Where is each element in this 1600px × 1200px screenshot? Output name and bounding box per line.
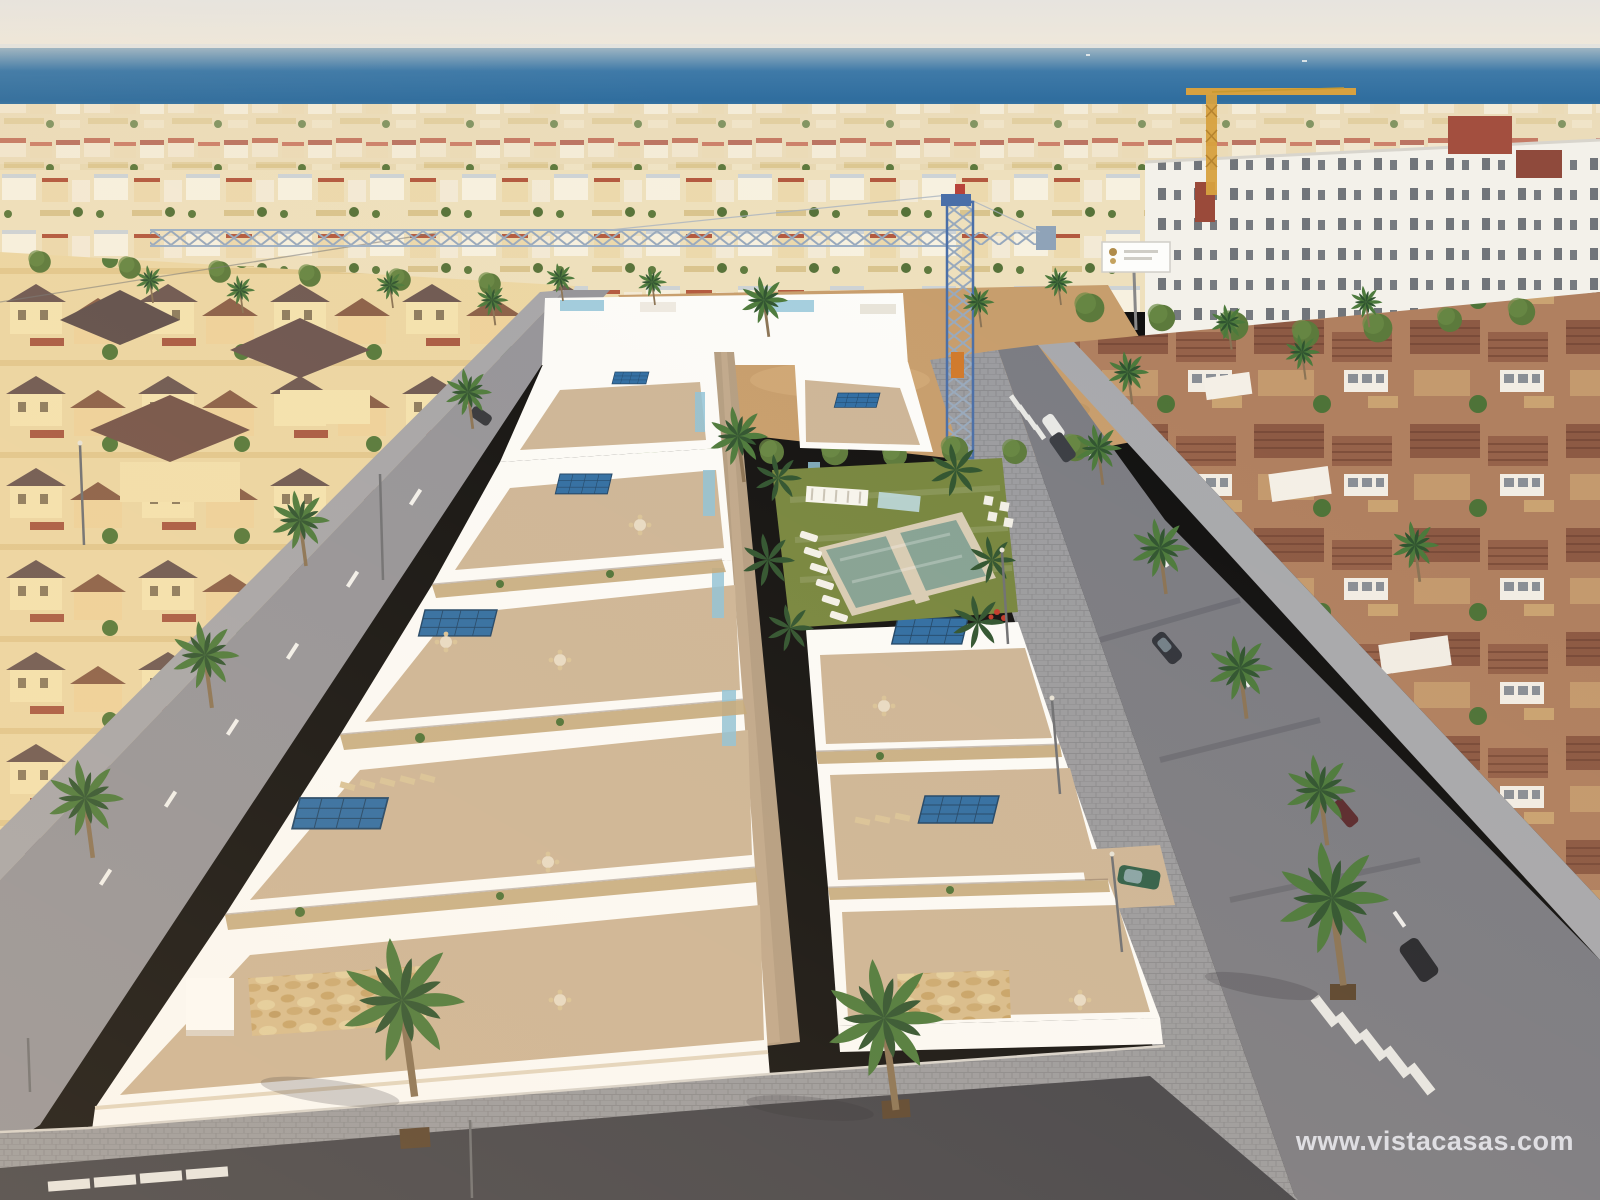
watermark-text: www.vistacasas.com bbox=[1295, 1126, 1574, 1156]
aerial-render-image: www.vistacasas.com bbox=[0, 0, 1600, 1200]
scene-svg: www.vistacasas.com bbox=[0, 0, 1600, 1200]
golden-light-overlay bbox=[0, 0, 1600, 1200]
